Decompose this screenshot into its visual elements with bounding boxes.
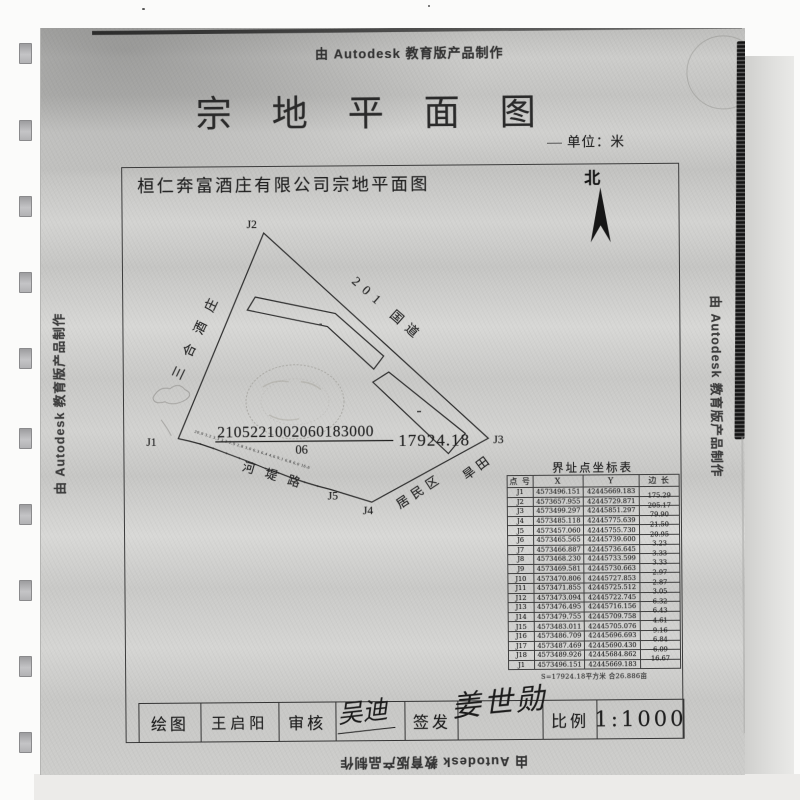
binder-hole	[19, 732, 32, 753]
point-id-cell: J6	[508, 535, 534, 545]
table-header-cell: X	[533, 475, 583, 487]
coord-cell: 42445851.297	[583, 506, 639, 516]
point-id-cell: J17	[508, 641, 534, 651]
point-label-j5: J5	[328, 490, 339, 502]
scanned-parcel-plan: 由 Autodesk 教育版产品制作 由 Autodesk 教育版产品制作 由 …	[0, 0, 800, 800]
binder-hole	[19, 504, 32, 525]
coord-cell: 4573470.806	[534, 573, 584, 583]
building-mark	[319, 324, 322, 326]
point-id-cell: J14	[508, 612, 534, 622]
coord-cell: 42445729.871	[583, 496, 639, 506]
table-header-cell: 点 号	[507, 475, 533, 487]
autodesk-watermark-left: 由 Autodesk 教育版产品制作	[48, 315, 68, 495]
binder-hole	[19, 656, 32, 677]
unit-label: 单位：米	[547, 130, 667, 151]
point-labels: J1 J2 J3 J4 J5	[145, 217, 505, 519]
page-edge-line	[741, 437, 745, 733]
coord-cell: 4573483.011	[534, 621, 584, 631]
backing-sheet	[744, 56, 794, 800]
parcel-area: 17924.18	[398, 430, 470, 450]
binder-hole	[19, 43, 32, 64]
table-header-row: 点 号XY边 长	[507, 474, 679, 487]
coord-cell: 4573487.469	[534, 641, 584, 651]
parcel-plan-subtitle: 桓仁奔富酒庄有限公司宗地平面图	[137, 170, 430, 197]
coord-cell: 42445733.599	[584, 554, 640, 564]
coord-cell: 4573465.565	[534, 535, 584, 545]
point-label-j3: J3	[493, 434, 504, 446]
autodesk-watermark-right: 由 Autodesk 教育版产品制作	[707, 295, 727, 475]
binder-hole	[19, 348, 32, 369]
point-id-cell: J15	[508, 622, 534, 632]
point-id-cell: J8	[508, 555, 534, 565]
coord-cell: 4573486.709	[534, 631, 584, 641]
coordinate-table-title: 界址点坐标表	[506, 459, 678, 475]
coord-cell: 42445725.512	[584, 583, 640, 593]
parcel-sub-number: 06	[295, 443, 308, 457]
scan-speck	[428, 5, 430, 7]
point-id-cell: J7	[508, 545, 534, 555]
table-header-cell: Y	[583, 475, 639, 487]
coord-cell: 42445716.156	[584, 602, 640, 612]
building-outline-1	[247, 296, 384, 370]
bottom-sheet-strip	[34, 774, 800, 800]
binder-hole	[19, 196, 32, 217]
page-title: 宗地平面图	[191, 83, 581, 138]
table-header-cell: 边 长	[639, 474, 679, 486]
point-id-cell: J11	[508, 583, 534, 593]
binder-hole	[19, 580, 32, 601]
point-id-cell: J13	[508, 603, 534, 613]
coord-cell: 42445669.183	[583, 487, 639, 497]
point-id-cell: J2	[507, 497, 533, 507]
edge-label-east: 旱田	[460, 452, 495, 483]
coord-cell: 42445684.862	[584, 650, 640, 660]
north-arrow-icon	[587, 184, 613, 246]
binder-hole	[19, 120, 32, 141]
coord-cell: 42445727.853	[584, 573, 640, 583]
autodesk-watermark-top: 由 Autodesk 教育版产品制作	[244, 42, 574, 64]
point-id-cell: J5	[507, 526, 533, 536]
spiral-binding-edge	[735, 41, 745, 439]
point-id-cell: J10	[508, 574, 534, 584]
table-row: J14573496.15142445669.183175.29	[507, 486, 679, 497]
coord-cell: 42445755.730	[583, 525, 639, 535]
coord-cell: 4573468.230	[534, 554, 584, 564]
coord-cell: 42445730.663	[584, 563, 640, 573]
coord-cell: 4573473.094	[534, 593, 584, 603]
scan-speck	[142, 8, 145, 10]
building-mark	[417, 411, 421, 413]
coord-cell: 4573471.855	[534, 583, 584, 593]
coord-cell: 42445696.693	[584, 630, 640, 640]
coord-cell: 42445739.600	[584, 535, 640, 545]
point-id-cell: J3	[507, 507, 533, 517]
point-label-j2: J2	[247, 219, 258, 231]
point-id-cell: J4	[507, 516, 533, 526]
coord-cell: 4573457.060	[533, 525, 583, 535]
edge-label-west: 三合酒庄	[169, 285, 226, 382]
point-label-j1: J1	[146, 437, 157, 449]
coord-cell: 4573479.755	[534, 612, 584, 622]
coordinate-table-body: J14573496.15142445669.183175.29J24573657…	[507, 486, 680, 670]
scale-value: 1:1000	[597, 700, 684, 739]
coord-cell: 42445669.183	[585, 659, 641, 669]
binder-hole	[19, 428, 32, 449]
page-top-edge-shadow	[92, 28, 742, 35]
scale-label: 比例	[543, 700, 597, 738]
unit-dash	[547, 143, 562, 144]
coordinate-table-header: 点 号XY边 长	[507, 474, 679, 487]
draw-label: 绘图	[139, 704, 201, 742]
margin-scribble	[153, 385, 190, 436]
coord-cell: 4573485.118	[533, 516, 583, 526]
coord-cell: 4573496.151	[533, 487, 583, 497]
coord-cell: 4573476.495	[534, 602, 584, 612]
coord-cell: 42445775.639	[583, 515, 639, 525]
parcel-outline	[177, 231, 489, 503]
point-id-cell: J1	[509, 660, 535, 670]
coordinate-table: 点 号XY边 长 J14573496.15142445669.183175.29…	[507, 474, 682, 671]
review-label: 审核	[279, 702, 336, 740]
point-label-j4: J4	[363, 505, 374, 517]
coord-cell: 42445722.745	[584, 592, 640, 602]
edge-label-northeast: 201 国道	[349, 273, 427, 344]
edge-label-southeast: 居民区	[394, 471, 446, 512]
coord-cell: 42445736.645	[584, 544, 640, 554]
point-id-cell: J18	[508, 650, 534, 660]
autodesk-watermark-bottom: 由 Autodesk 教育版产品制作	[284, 753, 584, 774]
draftsman-name: 王启阳	[201, 703, 279, 742]
point-id-cell: J1	[507, 487, 533, 497]
parcel-drawing: 20.9 3.2 3.3 3.3 2.9 2.8 3.0 6.3 6.4 4.6…	[139, 202, 554, 557]
coord-cell: 4573466.887	[534, 545, 584, 555]
coord-cell: 42445705.076	[584, 621, 640, 631]
parcel-number: 2105221002060183000	[217, 423, 374, 441]
coord-cell: 4573496.151	[535, 660, 585, 670]
title-block: 绘图 王启阳 审核 签发 比例 1:1000	[138, 699, 684, 743]
coord-cell: 4573469.581	[534, 564, 584, 574]
length-cell: 175.29	[639, 486, 679, 496]
coord-cell: 4573489.926	[534, 650, 584, 660]
coord-cell: 42445709.758	[584, 611, 640, 621]
coordinate-table-panel: 界址点坐标表 点 号XY边 长 J14573496.15142445669.18…	[506, 459, 680, 682]
reviewer-signature: 吴迪	[333, 689, 395, 734]
scan-page: 由 Autodesk 教育版产品制作 由 Autodesk 教育版产品制作 由 …	[40, 28, 745, 775]
coord-cell: 4573657.955	[533, 497, 583, 507]
point-id-cell: J9	[508, 564, 534, 574]
edge-labels: 三合酒庄 201 国道 河堤路 居民区 旱田	[168, 272, 495, 513]
point-id-cell: J16	[508, 631, 534, 641]
coord-cell: 4573499.297	[533, 506, 583, 516]
point-id-cell: J12	[508, 593, 534, 603]
binder-hole	[19, 272, 32, 293]
coord-cell: 42445690.430	[584, 640, 640, 650]
